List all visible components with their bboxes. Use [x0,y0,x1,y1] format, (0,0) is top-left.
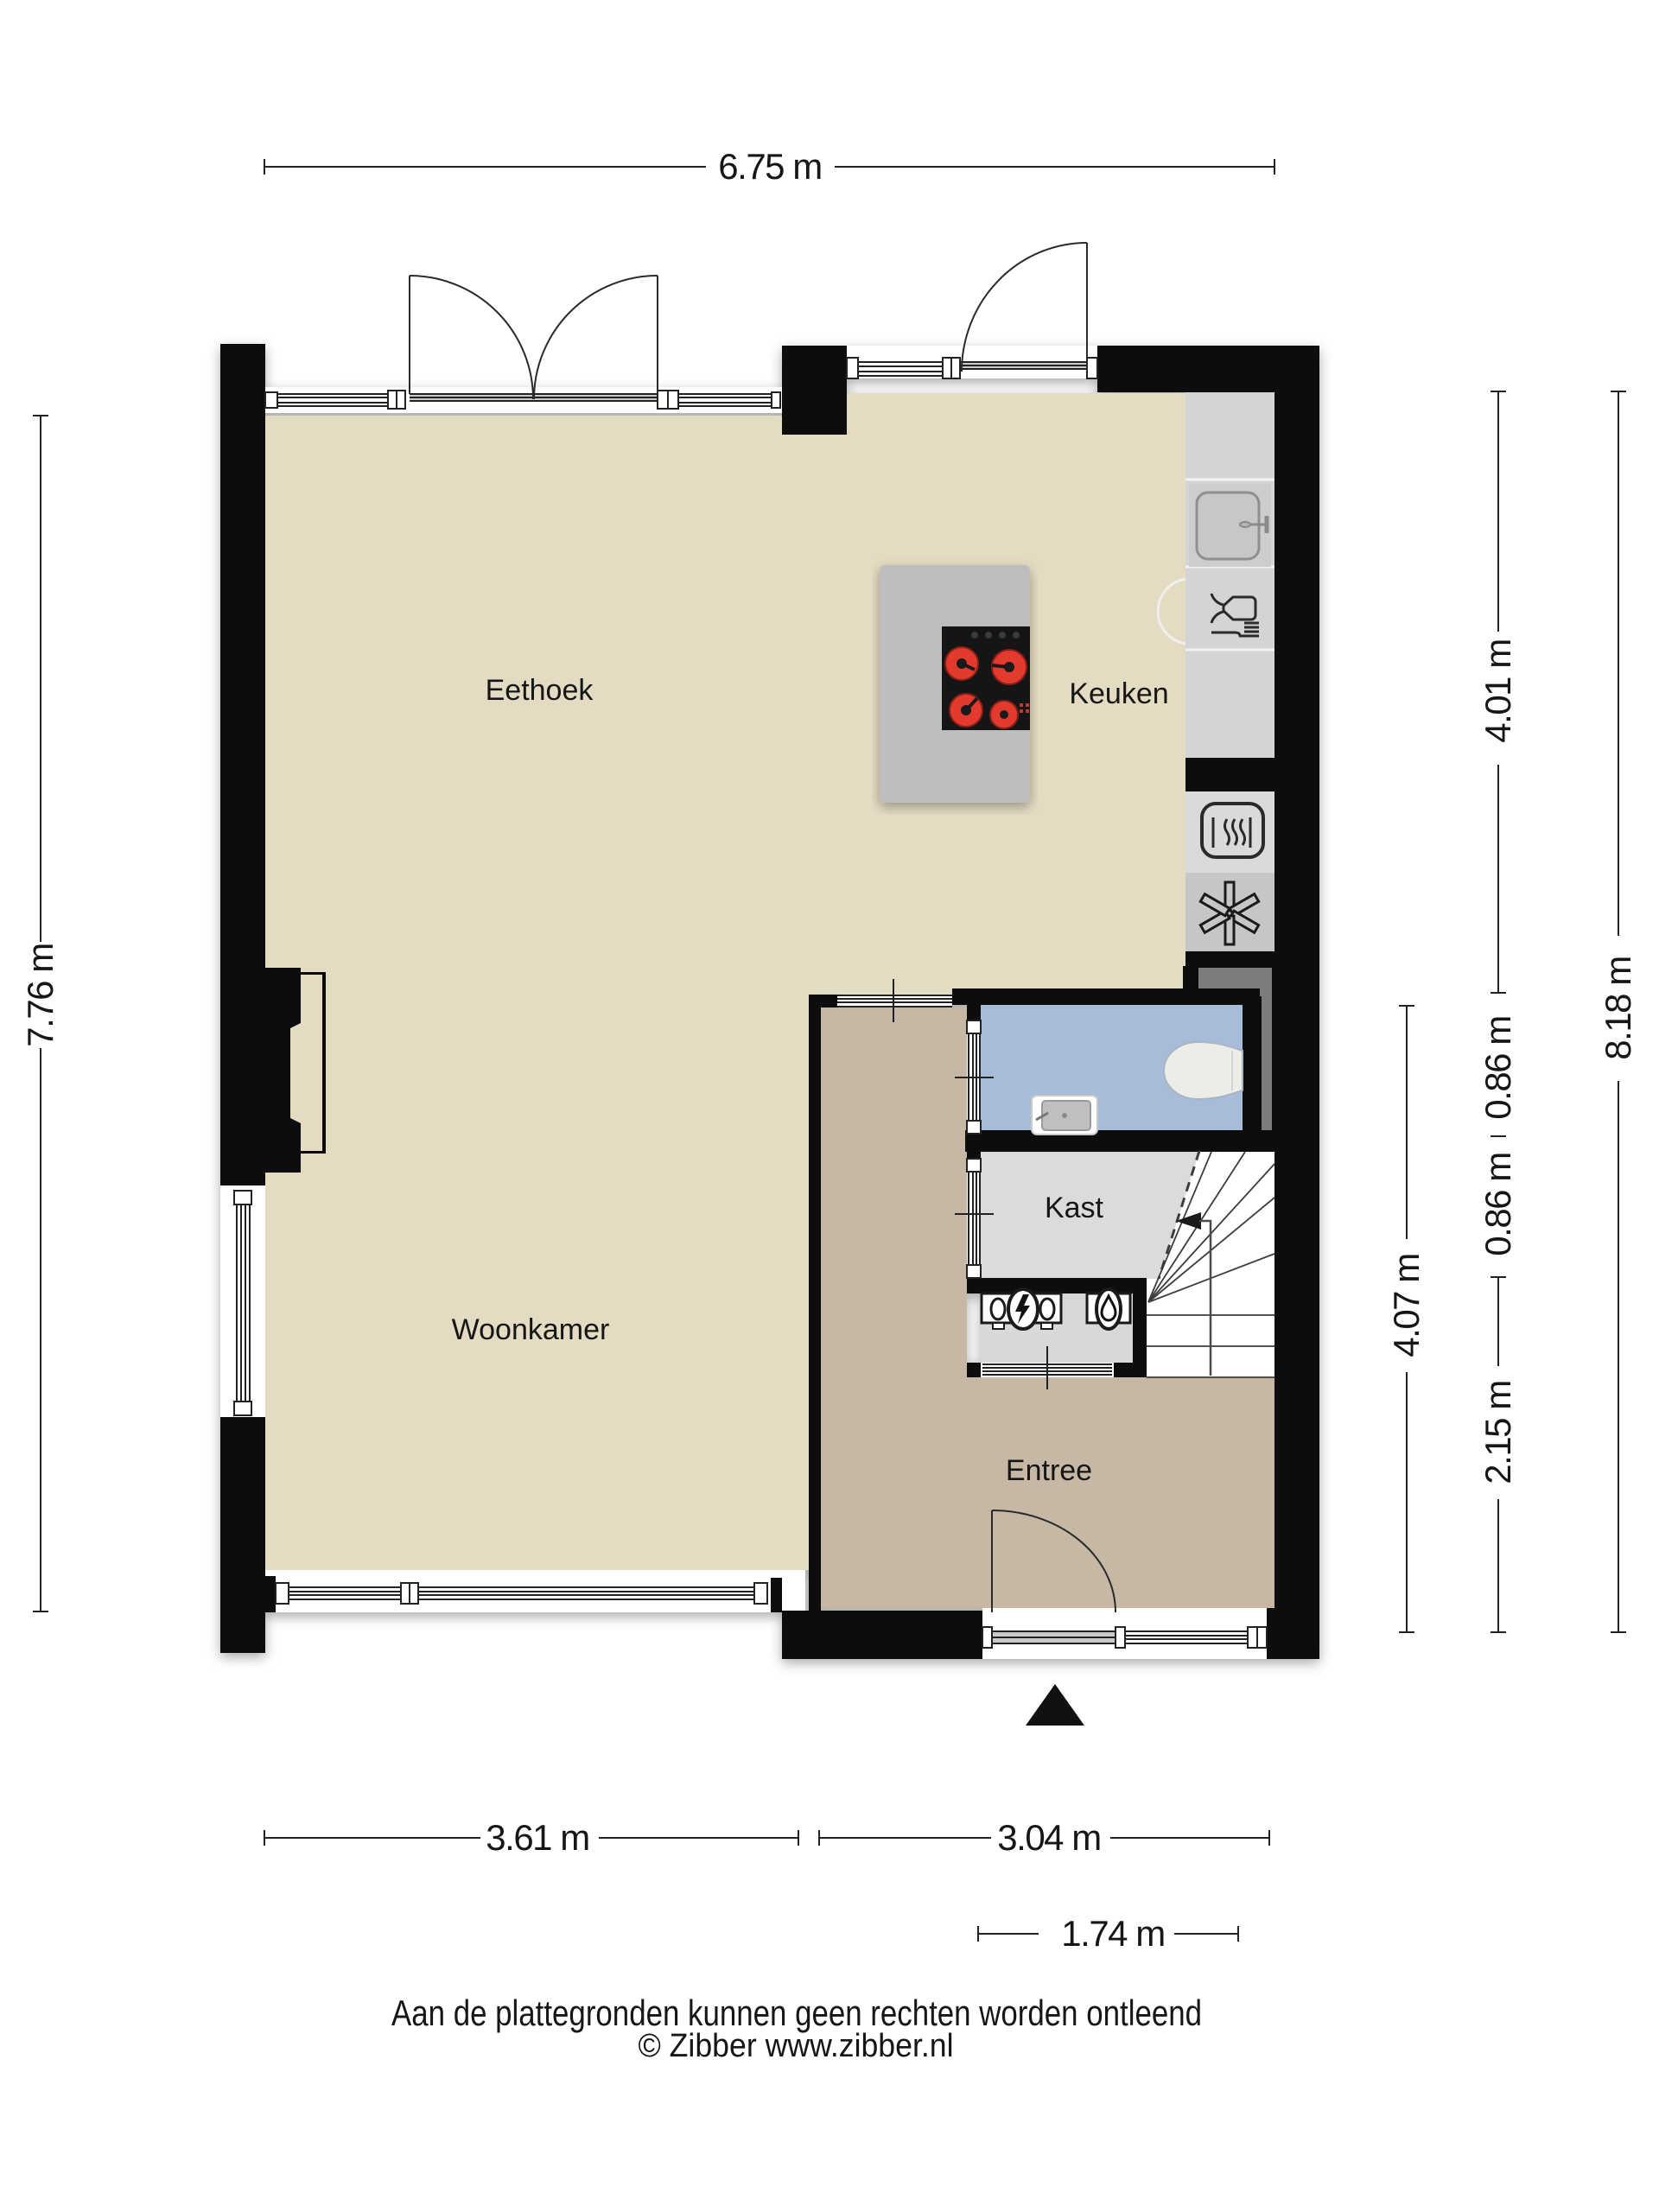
svg-text:Eethoek: Eethoek [486,674,594,707]
svg-text:6.75 m: 6.75 m [718,146,821,187]
svg-text:7.76 m: 7.76 m [20,944,60,1046]
svg-text:0.86 m: 0.86 m [1478,1153,1518,1255]
svg-text:4.07 m: 4.07 m [1386,1254,1427,1357]
svg-text:Kast: Kast [1045,1192,1104,1224]
svg-text:Entree: Entree [1006,1454,1092,1487]
svg-text:Woonkamer: Woonkamer [452,1313,610,1346]
svg-text:Aan de plattegronden kunnen ge: Aan de plattegronden kunnen geen rechten… [391,1993,1202,2033]
svg-text:3.61 m: 3.61 m [486,1817,588,1858]
svg-text:Keuken: Keuken [1069,677,1168,710]
svg-text:© Zibber www.zibber.nl: © Zibber www.zibber.nl [639,2028,954,2064]
svg-text:0.86 m: 0.86 m [1478,1016,1518,1119]
svg-text:3.04 m: 3.04 m [997,1817,1100,1858]
svg-text:2.15 m: 2.15 m [1478,1381,1518,1484]
svg-text:8.18 m: 8.18 m [1598,957,1638,1059]
svg-text:4.01 m: 4.01 m [1478,639,1518,742]
svg-text:1.74 m: 1.74 m [1061,1913,1164,1954]
